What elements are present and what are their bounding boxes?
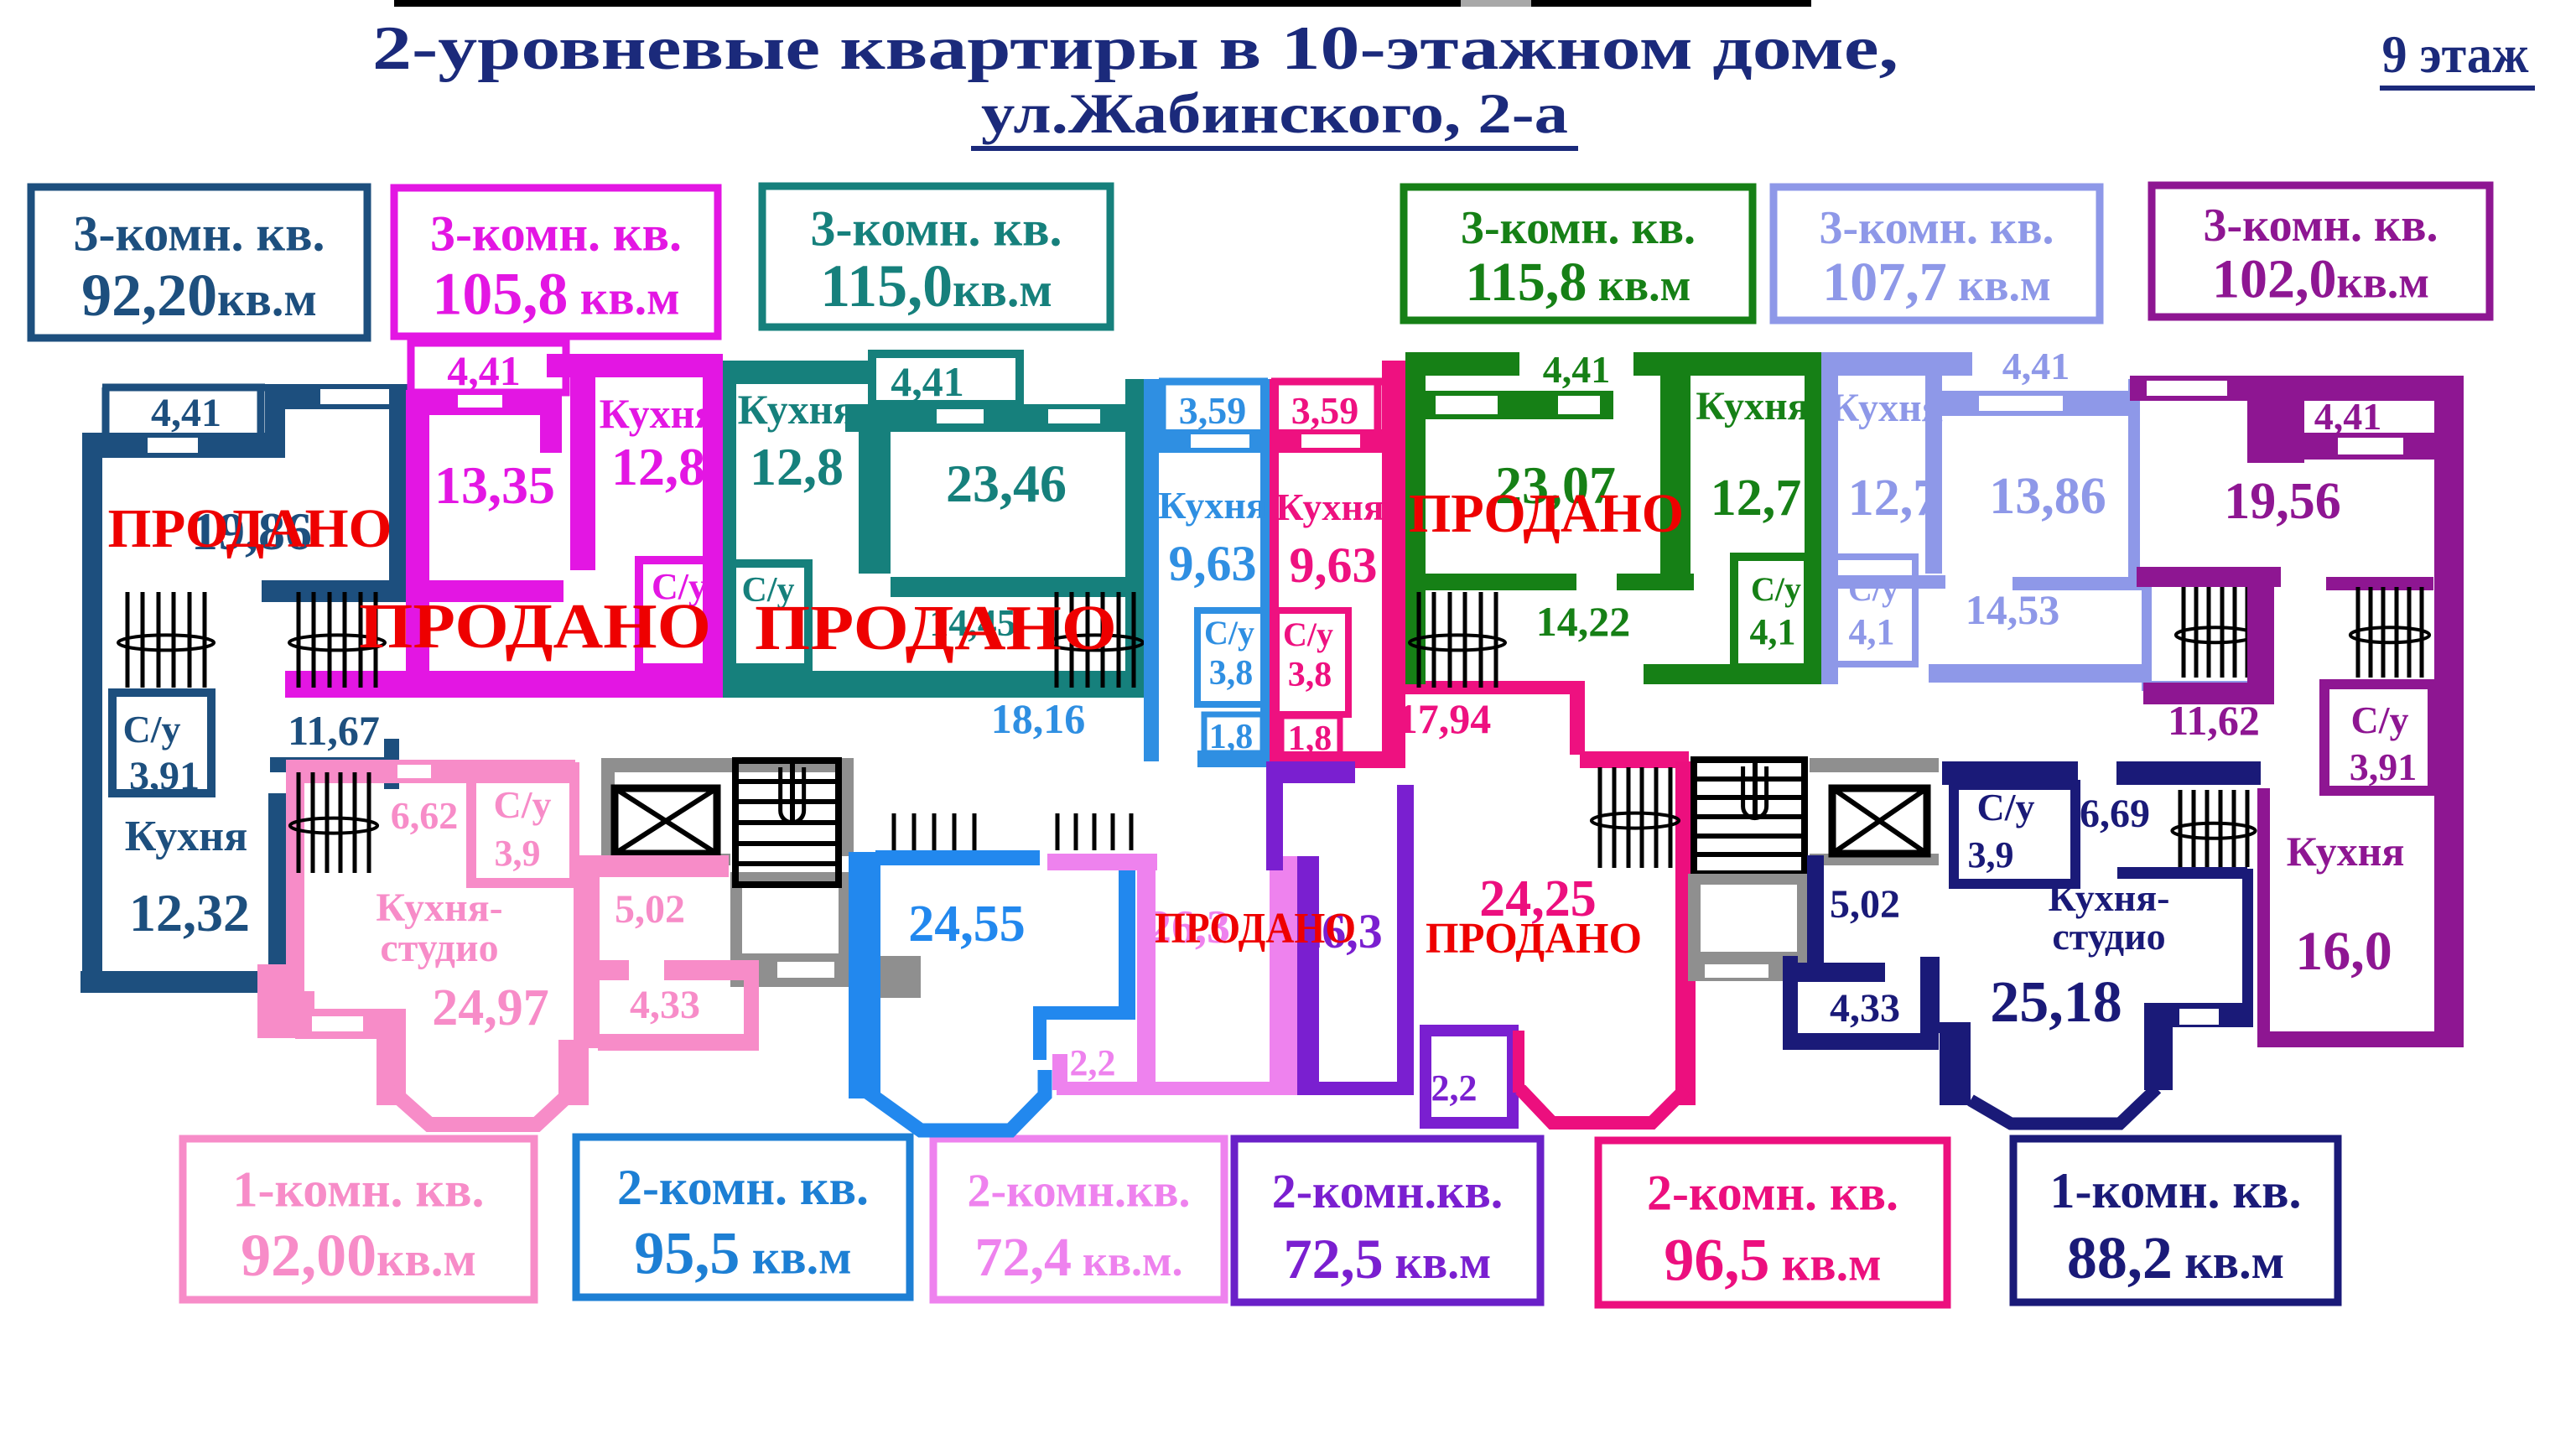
svg-text:С/у: С/у (1848, 570, 1898, 608)
svg-text:Кухня: Кухня (738, 386, 856, 433)
svg-text:Кухня: Кухня (1830, 386, 1943, 430)
svg-text:3,9: 3,9 (495, 833, 541, 874)
svg-text:14,22: 14,22 (1536, 598, 1631, 645)
svg-text:3-комн. кв.: 3-комн. кв. (2203, 200, 2438, 252)
svg-text:12,8: 12,8 (750, 437, 844, 496)
svg-text:2,2: 2,2 (1070, 1042, 1116, 1083)
svg-text:5,02: 5,02 (615, 887, 685, 932)
svg-text:92,20кв.м: 92,20кв.м (81, 262, 317, 329)
svg-text:4,41: 4,41 (1543, 348, 1611, 391)
svg-text:4,41: 4,41 (2002, 345, 2070, 387)
svg-text:18,16: 18,16 (991, 695, 1086, 742)
svg-text:24,97: 24,97 (432, 979, 549, 1036)
svg-text:5,02: 5,02 (1830, 882, 1900, 927)
svg-text:С/у: С/у (1204, 614, 1254, 652)
svg-text:2-комн. кв.: 2-комн. кв. (617, 1160, 869, 1215)
svg-text:С/у: С/у (1751, 570, 1801, 608)
svg-text:72,5 кв.м: 72,5 кв.м (1284, 1227, 1492, 1291)
svg-text:17,94: 17,94 (1397, 695, 1492, 742)
svg-text:1-комн. кв.: 1-комн. кв. (232, 1162, 484, 1218)
svg-text:С/у: С/у (1283, 615, 1333, 653)
svg-text:3,91: 3,91 (129, 754, 200, 798)
svg-text:2-комн.кв.: 2-комн.кв. (1272, 1164, 1504, 1218)
svg-text:ПРОДАНО: ПРОДАНО (1409, 483, 1684, 544)
svg-text:12,7: 12,7 (1848, 470, 1940, 527)
svg-text:4,33: 4,33 (1830, 986, 1900, 1031)
svg-text:1-комн. кв.: 1-комн. кв. (2049, 1163, 2301, 1218)
svg-text:3,9: 3,9 (1968, 834, 2014, 875)
svg-text:3-комн. кв.: 3-комн. кв. (73, 206, 325, 262)
svg-text:11,62: 11,62 (2168, 697, 2260, 744)
svg-text:4,41: 4,41 (2314, 395, 2382, 438)
svg-text:6,69: 6,69 (2080, 792, 2150, 836)
svg-text:4,1: 4,1 (1849, 611, 1895, 652)
svg-text:Кухня: Кухня (125, 813, 248, 860)
svg-text:3,8: 3,8 (1209, 654, 1254, 693)
svg-text:2,2: 2,2 (1431, 1067, 1478, 1109)
svg-text:12,8: 12,8 (611, 437, 705, 496)
svg-text:4,41: 4,41 (447, 347, 521, 394)
svg-text:1,8: 1,8 (1209, 718, 1254, 756)
svg-text:3,91: 3,91 (2350, 745, 2418, 788)
svg-text:16,0: 16,0 (2295, 921, 2392, 982)
svg-text:3,59: 3,59 (1179, 389, 1247, 432)
svg-text:9 этаж: 9 этаж (2382, 24, 2530, 84)
svg-text:С/у: С/у (2351, 699, 2409, 741)
svg-text:Кухня: Кухня (1158, 484, 1267, 527)
svg-text:25,18: 25,18 (1990, 970, 2122, 1035)
svg-text:2-комн.кв.: 2-комн.кв. (967, 1166, 1190, 1218)
svg-text:9,63: 9,63 (1169, 536, 1257, 591)
svg-text:Кухня: Кухня (1696, 384, 1809, 428)
svg-text:Кухня: Кухня (2287, 828, 2405, 875)
svg-text:115,8 кв.м: 115,8 кв.м (1466, 252, 1691, 313)
svg-text:4,33: 4,33 (630, 983, 700, 1027)
svg-text:88,2 кв.м: 88,2 кв.м (2067, 1224, 2284, 1291)
svg-text:3-комн. кв.: 3-комн. кв. (1819, 202, 2054, 254)
svg-text:ПРОДАНО: ПРОДАНО (359, 591, 711, 662)
svg-text:С/у: С/у (494, 783, 552, 826)
svg-text:3,8: 3,8 (1288, 656, 1332, 694)
svg-text:С/у: С/у (123, 708, 181, 750)
svg-text:ПРОДАНО: ПРОДАНО (755, 593, 1117, 663)
svg-text:4,41: 4,41 (891, 358, 964, 405)
svg-text:ПРОДАНО: ПРОДАНО (1426, 915, 1642, 963)
svg-text:13,86: 13,86 (1989, 468, 2106, 525)
svg-text:102,0кв.м: 102,0кв.м (2212, 248, 2429, 309)
svg-text:9,63: 9,63 (1290, 538, 1378, 593)
svg-text:6,62: 6,62 (391, 794, 459, 837)
svg-text:ПРОДАНО: ПРОДАНО (1155, 905, 1356, 953)
svg-text:3-комн. кв.: 3-комн. кв. (810, 201, 1062, 257)
svg-text:Кухня: Кухня (1275, 486, 1384, 528)
svg-text:3-комн. кв.: 3-комн. кв. (430, 205, 682, 261)
svg-text:92,00кв.м: 92,00кв.м (241, 1222, 476, 1289)
svg-text:107,7 кв.м: 107,7 кв.м (1822, 252, 2051, 313)
svg-text:3,59: 3,59 (1291, 389, 1359, 432)
svg-text:14,53: 14,53 (1966, 586, 2060, 633)
svg-text:4,41: 4,41 (151, 391, 221, 435)
svg-text:105,8 кв.м: 105,8 кв.м (432, 260, 679, 327)
svg-text:19,56: 19,56 (2224, 473, 2341, 530)
svg-text:2-уровневые квартиры в 10-этаж: 2-уровневые квартиры в 10-этажном доме, (372, 14, 1898, 83)
svg-text:студио: студио (2052, 915, 2165, 958)
svg-text:1,8: 1,8 (1288, 719, 1332, 758)
svg-text:23,46: 23,46 (946, 454, 1067, 513)
svg-text:24,55: 24,55 (908, 896, 1026, 953)
svg-text:115,0кв.м: 115,0кв.м (820, 252, 1052, 319)
svg-text:3-комн. кв.: 3-комн. кв. (1461, 202, 1696, 254)
svg-text:11,67: 11,67 (288, 707, 380, 754)
svg-text:12,32: 12,32 (129, 883, 250, 943)
svg-text:Кухня-: Кухня- (376, 885, 502, 930)
svg-text:2-комн. кв.: 2-комн. кв. (1647, 1165, 1898, 1220)
svg-text:студио: студио (380, 926, 498, 970)
svg-text:С/у: С/у (1977, 786, 2035, 828)
svg-text:ул.Жабинского, 2-а: ул.Жабинского, 2-а (981, 81, 1568, 145)
svg-text:ПРОДАНО: ПРОДАНО (108, 498, 392, 559)
svg-text:96,5 кв.м: 96,5 кв.м (1664, 1227, 1881, 1294)
svg-text:12,7: 12,7 (1711, 470, 1802, 527)
svg-text:13,35: 13,35 (434, 455, 555, 515)
svg-text:4,1: 4,1 (1750, 611, 1796, 652)
svg-text:Кухня: Кухня (600, 390, 718, 437)
svg-text:95,5 кв.м: 95,5 кв.м (634, 1219, 851, 1286)
svg-text:Кухня-: Кухня- (2049, 876, 2170, 919)
